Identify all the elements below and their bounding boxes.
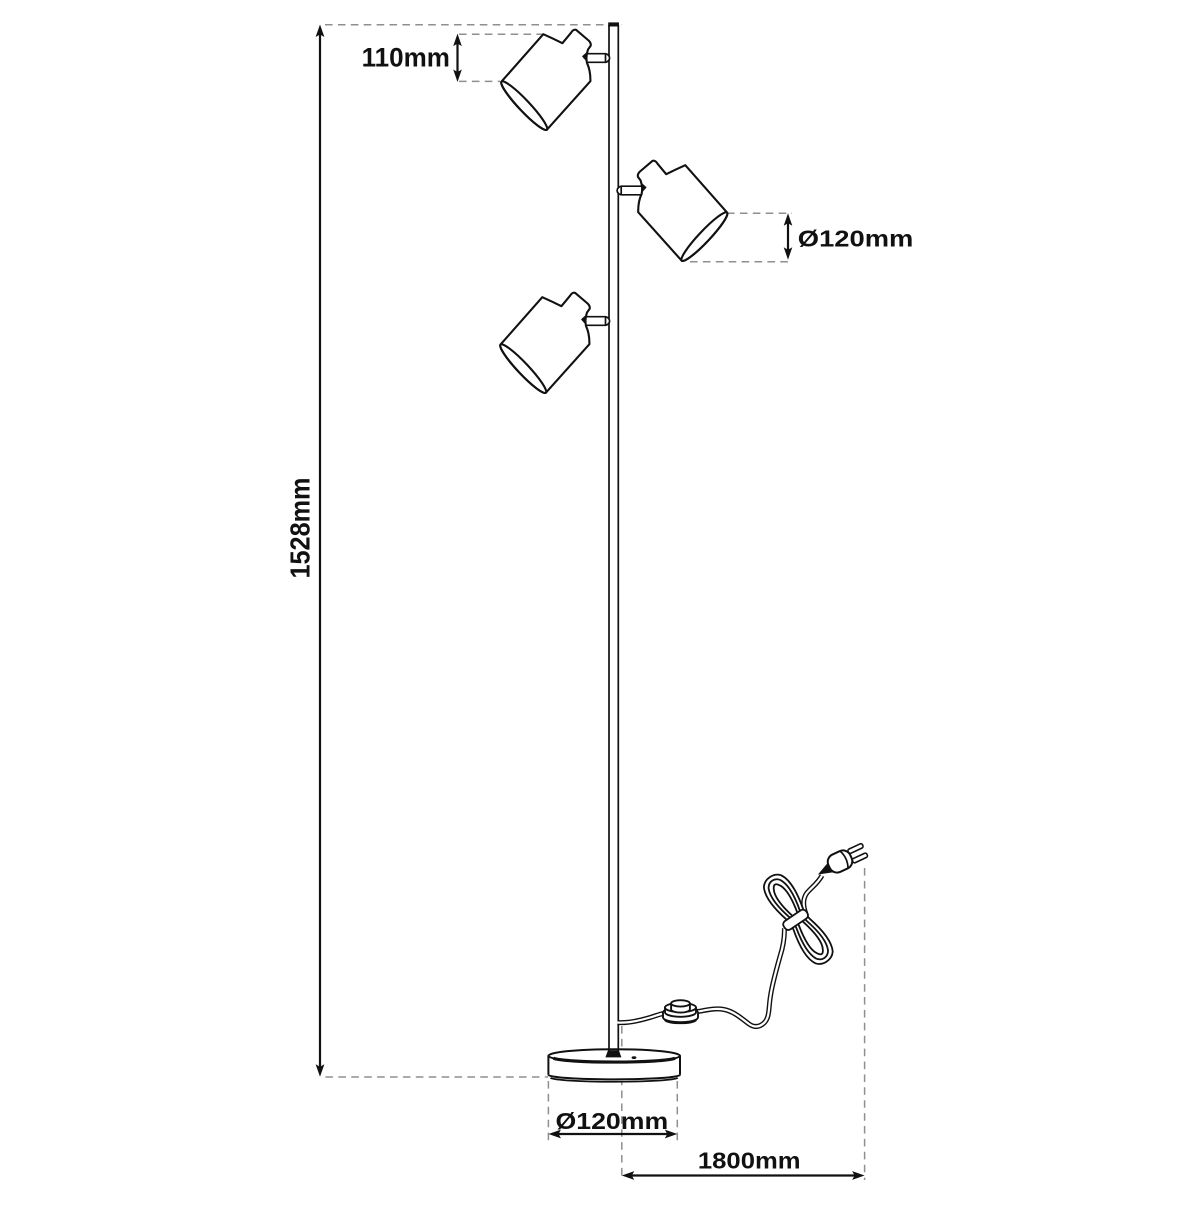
svg-text:Ø120mm: Ø120mm bbox=[798, 225, 914, 251]
svg-text:1528mm: 1528mm bbox=[285, 478, 316, 579]
svg-text:Ø120mm: Ø120mm bbox=[556, 1108, 669, 1134]
svg-text:110mm: 110mm bbox=[362, 43, 450, 73]
svg-text:1800mm: 1800mm bbox=[698, 1148, 801, 1174]
